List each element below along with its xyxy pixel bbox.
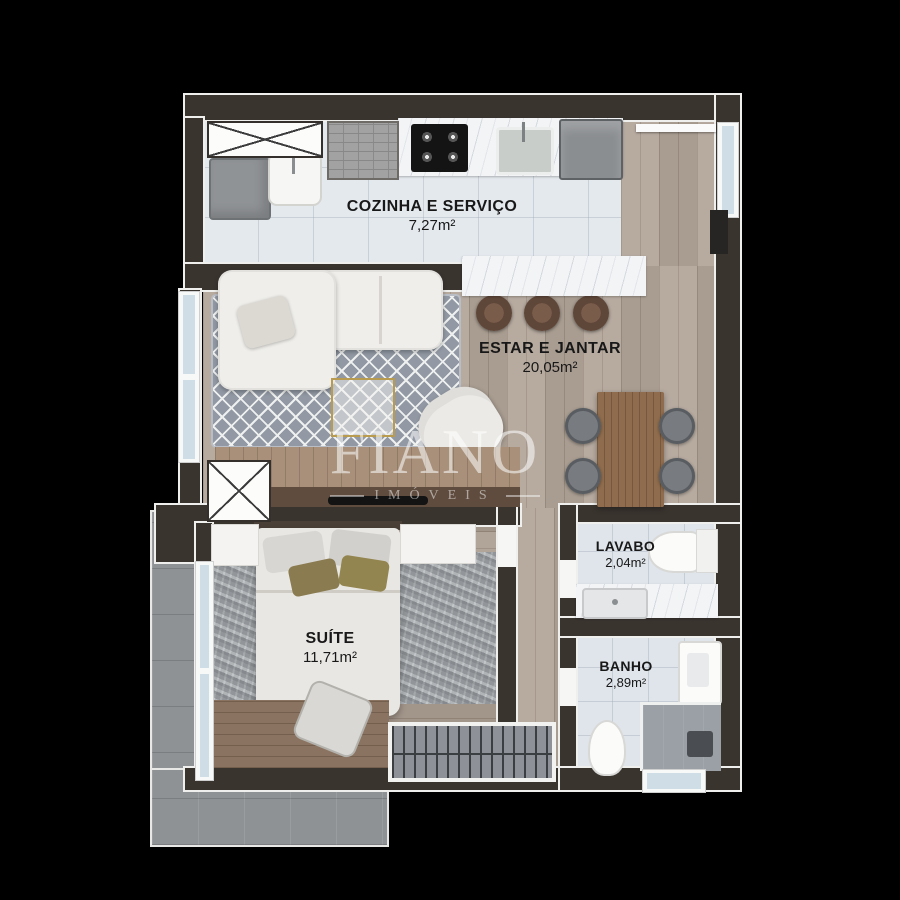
watermark-line — [506, 495, 540, 497]
shaft-x-suite — [207, 460, 271, 522]
room-label-banho: BANHO 2,89m² — [576, 658, 676, 690]
entry-door-leaf — [636, 124, 716, 132]
watermark-brand: FIANO — [300, 420, 570, 484]
dining-table — [597, 392, 664, 507]
banho-window — [643, 770, 705, 792]
bar-stool — [573, 295, 609, 331]
wall-lavabo-left — [560, 505, 576, 790]
living-window — [179, 292, 199, 462]
bar-stool — [476, 295, 512, 331]
refrigerator — [559, 119, 623, 180]
entry-closet — [710, 210, 728, 254]
kitchen-sink — [496, 127, 554, 175]
dining-chair — [659, 458, 695, 494]
shower-area — [640, 702, 721, 771]
wall-top — [185, 95, 738, 120]
lavabo-toilet-tank — [696, 529, 718, 573]
shower-fixture — [687, 731, 713, 757]
sofa-cushion-seam — [379, 276, 382, 344]
wall-lavabo-banho — [560, 618, 740, 636]
kitchen-island — [462, 256, 646, 296]
watermark: FIANO IMÓVEIS — [300, 420, 570, 504]
nightstand-left — [211, 524, 259, 566]
wall-lavabo-top — [560, 505, 740, 522]
banho-sink — [678, 641, 722, 705]
banho-toilet — [588, 720, 626, 776]
room-area: 7,27m² — [312, 217, 552, 234]
floor-plan-scene: COZINHA E SERVIÇO 7,27m² ESTAR E JANTAR … — [0, 0, 900, 900]
kitchen-faucet — [522, 122, 525, 142]
suite-window-mullion — [196, 668, 213, 674]
closet-hangers — [388, 722, 556, 782]
room-name: COZINHA E SERVIÇO — [312, 198, 552, 216]
wall-left-kitchen — [185, 118, 203, 266]
lavabo-sink — [582, 588, 648, 619]
room-name: ESTAR E JANTAR — [440, 340, 660, 358]
dining-chair — [659, 408, 695, 444]
room-area: 11,71m² — [255, 649, 405, 666]
cooktop — [411, 124, 468, 172]
room-area: 2,04m² — [578, 555, 673, 570]
suite-window — [196, 562, 213, 780]
bar-stool — [524, 295, 560, 331]
dining-chair — [565, 458, 601, 494]
room-name: SUÍTE — [255, 630, 405, 648]
banho-window-glass — [647, 773, 701, 789]
lavabo-door-opening — [560, 560, 576, 598]
shaft-x-top — [207, 121, 323, 158]
nightstand-right — [400, 524, 476, 564]
suite-door-opening — [498, 525, 516, 567]
banho-door-opening — [560, 668, 576, 706]
room-name: LAVABO — [578, 538, 673, 554]
masonry-shaft — [327, 121, 399, 180]
watermark-line — [330, 495, 364, 497]
watermark-tagline: IMÓVEIS — [374, 488, 495, 504]
room-area: 2,89m² — [576, 675, 676, 690]
entry-sidelight-glass — [718, 123, 738, 217]
entry-sidelight-pane — [722, 126, 734, 214]
room-label-lavabo: LAVABO 2,04m² — [578, 538, 673, 570]
room-label-estar: ESTAR E JANTAR 20,05m² — [440, 340, 660, 376]
banho-sink-basin — [687, 653, 709, 687]
watermark-tagline-row: IMÓVEIS — [300, 488, 570, 504]
room-label-suite: SUÍTE 11,71m² — [255, 630, 405, 666]
room-area: 20,05m² — [440, 359, 660, 376]
room-label-cozinha: COZINHA E SERVIÇO 7,27m² — [312, 198, 552, 234]
washing-machine — [209, 158, 271, 220]
room-name: BANHO — [576, 658, 676, 674]
dining-chair — [565, 408, 601, 444]
living-window-mullion — [179, 374, 199, 380]
lavabo-drain — [612, 599, 618, 605]
entry-wood-floor — [621, 118, 718, 268]
